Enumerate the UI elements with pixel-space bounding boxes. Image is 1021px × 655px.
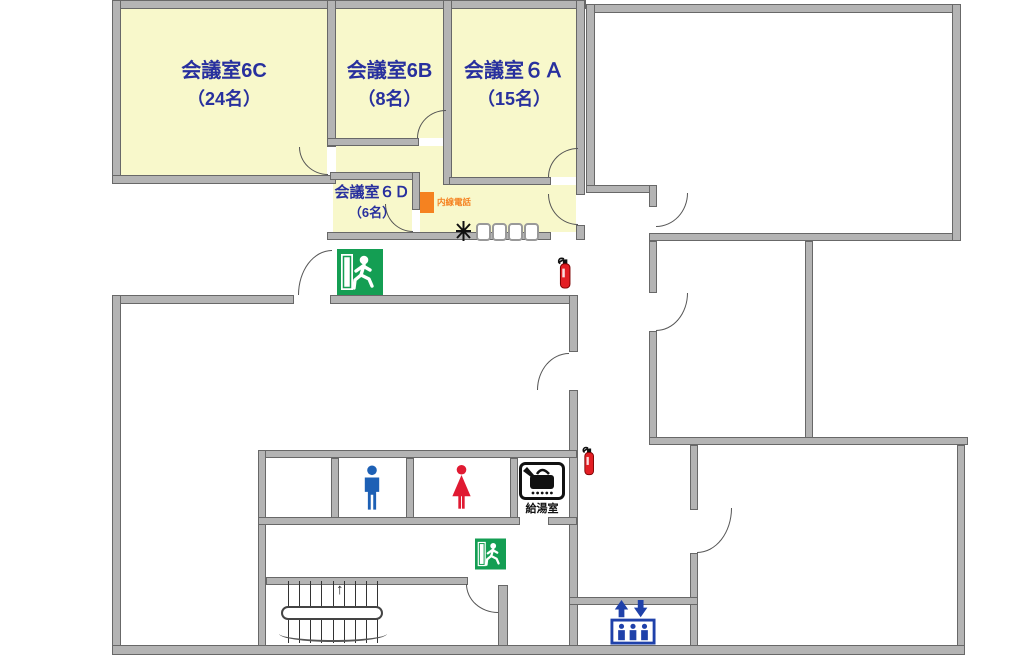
men-restroom-icon: [361, 465, 383, 513]
fire-extinguisher-icon: [556, 255, 574, 290]
wall: [548, 517, 577, 525]
wall: [331, 458, 339, 518]
wall: [569, 295, 578, 352]
wall: [266, 577, 468, 585]
wall: [586, 185, 656, 193]
wall: [510, 458, 518, 518]
women-restroom-icon: [449, 464, 474, 513]
wall: [112, 295, 121, 655]
kitchenette-icon: [519, 462, 565, 500]
wall: [112, 295, 294, 304]
wall: [443, 0, 452, 185]
wall: [805, 241, 813, 445]
wall: [258, 517, 520, 525]
elevator-icon: [609, 599, 657, 645]
wall: [449, 177, 551, 185]
wall: [112, 645, 965, 655]
stair-base-line: [279, 632, 387, 642]
door-arc: [537, 353, 569, 390]
chair-icon: [476, 223, 491, 241]
wall: [649, 331, 657, 438]
door-arc: [656, 293, 688, 331]
wall: [412, 172, 420, 210]
wall: [498, 585, 508, 653]
door-gap: [419, 138, 446, 146]
door-arc: [298, 250, 332, 295]
wall: [327, 0, 336, 147]
wall: [957, 445, 965, 653]
kitchenette-label: 給湯室: [519, 500, 565, 516]
chair-icon: [524, 223, 539, 241]
room-6b-label: 会議室6B （8名）: [336, 42, 443, 126]
wall: [330, 295, 577, 304]
wall: [112, 0, 121, 184]
door-arc: [466, 584, 498, 613]
room-6a-label: 会議室６Ａ （15名）: [452, 42, 576, 126]
intercom-phone-icon: [420, 192, 434, 213]
plant-icon: [454, 220, 473, 242]
emergency-exit-icon: [475, 533, 506, 575]
wall: [406, 458, 414, 518]
wall: [258, 450, 266, 655]
wall: [112, 175, 336, 184]
wall: [112, 0, 586, 9]
door-gap: [551, 232, 577, 240]
door-arc: [656, 193, 688, 227]
intercom-phone-label: 内線電話: [437, 196, 471, 208]
wall: [649, 241, 657, 293]
wall: [952, 4, 961, 241]
door-gap: [412, 210, 420, 232]
wall: [586, 4, 961, 13]
wall: [576, 225, 585, 240]
door-gap: [551, 177, 577, 185]
chair-icon: [492, 223, 507, 241]
emergency-exit-icon: [337, 249, 383, 295]
fire-extinguisher-icon: [581, 443, 597, 478]
wall: [690, 445, 698, 510]
wall: [649, 233, 961, 241]
wall: [649, 437, 968, 445]
wall: [327, 138, 419, 146]
floor-plan: 会議室6C （24名） 会議室6B （8名） 会議室６Ａ （15名） 会議室６Ｄ…: [0, 0, 1021, 655]
wall: [258, 450, 577, 458]
chair-icon: [508, 223, 523, 241]
room-6d-label: 会議室６Ｄ （6名）: [331, 176, 413, 228]
room-6c-label: 会議室6C （24名）: [121, 42, 327, 126]
wall: [586, 4, 595, 193]
stair-handrail: [281, 606, 383, 620]
stairs-up-arrow: ↑: [336, 581, 344, 598]
door-arc: [697, 508, 732, 553]
door-gap: [327, 147, 336, 175]
